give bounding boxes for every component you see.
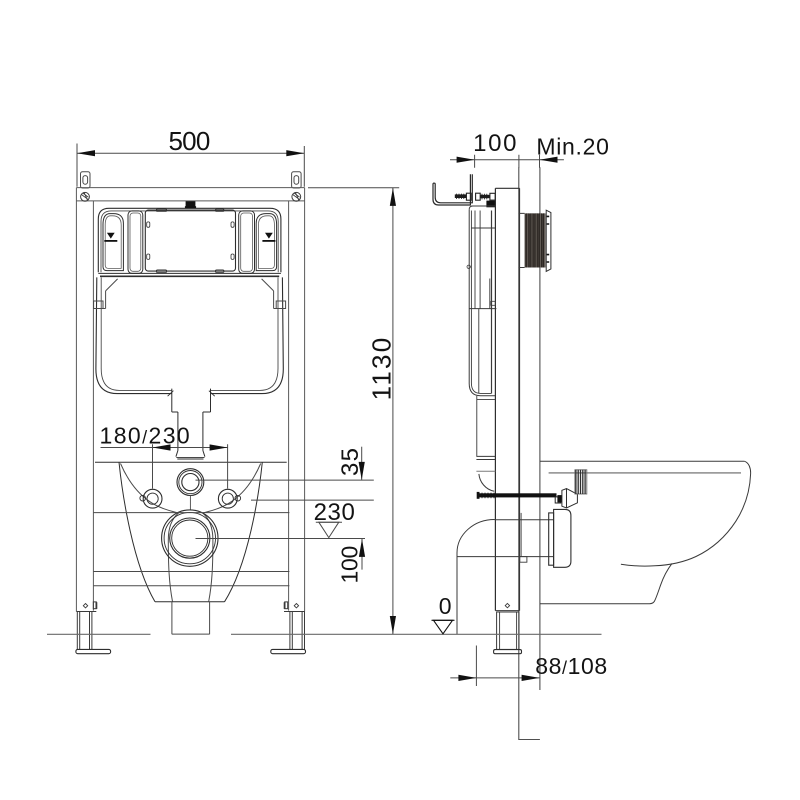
svg-text:100: 100 <box>337 546 363 583</box>
svg-text:35: 35 <box>337 447 364 476</box>
svg-text:0: 0 <box>439 593 452 619</box>
svg-text:1130: 1130 <box>367 336 397 401</box>
svg-text:88/108: 88/108 <box>535 653 608 679</box>
svg-text:230: 230 <box>314 499 356 526</box>
svg-text:500: 500 <box>169 126 210 156</box>
svg-text:100: 100 <box>473 130 518 157</box>
svg-text:Min.20: Min.20 <box>536 134 609 160</box>
